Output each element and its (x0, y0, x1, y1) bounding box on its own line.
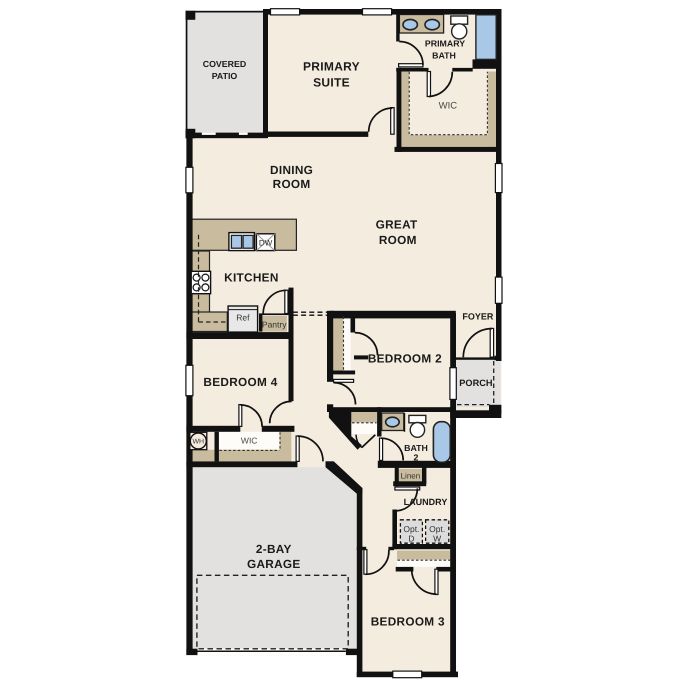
svg-text:DINING: DINING (270, 163, 313, 177)
svg-text:BEDROOM 2: BEDROOM 2 (368, 352, 442, 366)
svg-text:ROOM: ROOM (379, 233, 417, 247)
svg-text:W: W (433, 534, 441, 544)
svg-text:ROOM: ROOM (273, 177, 311, 191)
svg-text:Ref: Ref (236, 312, 250, 322)
svg-text:SUITE: SUITE (313, 76, 350, 90)
svg-text:KITCHEN: KITCHEN (224, 271, 279, 285)
svg-text:PRIMARY: PRIMARY (303, 60, 360, 74)
svg-text:PORCH: PORCH (459, 378, 493, 388)
svg-text:PATIO: PATIO (212, 71, 238, 81)
svg-text:Opt.: Opt. (429, 524, 445, 534)
svg-text:BATH: BATH (432, 50, 456, 60)
svg-text:PRIMARY: PRIMARY (425, 39, 465, 49)
svg-text:COVERED: COVERED (203, 59, 247, 69)
svg-text:2: 2 (414, 452, 419, 462)
svg-text:Linen: Linen (401, 472, 421, 481)
svg-text:DW: DW (259, 238, 273, 247)
svg-text:Pantry: Pantry (262, 320, 287, 330)
svg-text:BEDROOM 3: BEDROOM 3 (371, 615, 445, 629)
svg-text:FOYER: FOYER (462, 312, 494, 322)
svg-text:Opt.: Opt. (403, 524, 419, 534)
svg-text:BEDROOM 4: BEDROOM 4 (203, 375, 277, 389)
svg-text:WIC: WIC (439, 101, 458, 112)
svg-text:WH: WH (192, 439, 204, 446)
svg-text:D: D (408, 534, 414, 544)
svg-text:LAUNDRY: LAUNDRY (404, 497, 448, 507)
svg-text:2-BAY: 2-BAY (256, 542, 292, 556)
svg-text:GREAT: GREAT (376, 218, 418, 232)
svg-text:GARAGE: GARAGE (247, 557, 301, 571)
svg-text:WIC: WIC (241, 436, 258, 446)
